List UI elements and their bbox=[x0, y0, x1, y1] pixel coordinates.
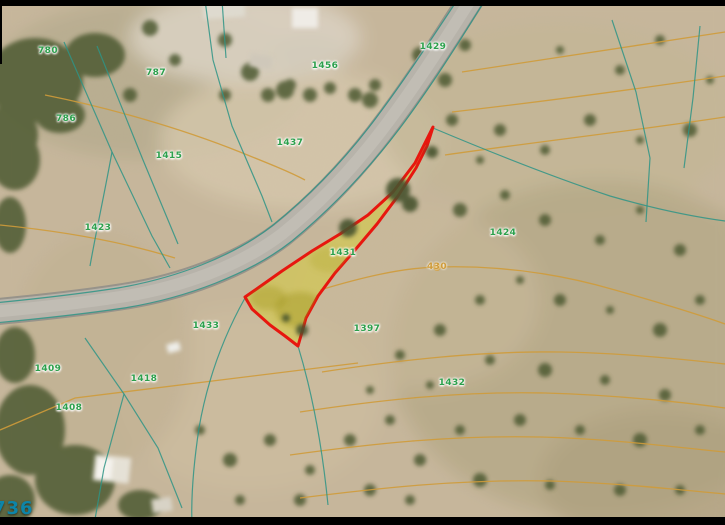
left-edge-bar bbox=[0, 6, 2, 64]
map-viewport[interactable]: 7807877861415142314561429143714311424143… bbox=[0, 0, 725, 525]
bottom-letterbox-bar bbox=[0, 517, 725, 525]
aerial-map-canvas[interactable] bbox=[0, 0, 725, 525]
top-letterbox-bar bbox=[0, 0, 725, 6]
map-sheet-number: 736 bbox=[0, 498, 34, 519]
